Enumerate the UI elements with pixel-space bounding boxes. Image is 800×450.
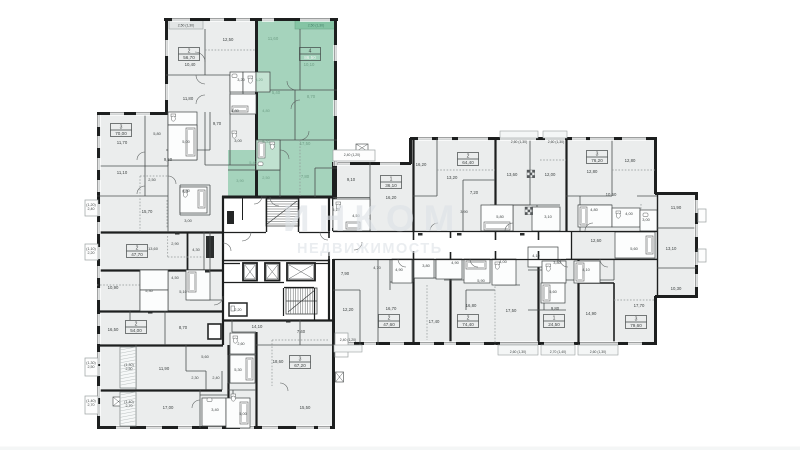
svg-text:17,50: 17,50 <box>506 308 517 313</box>
svg-text:3,00: 3,00 <box>234 138 242 143</box>
svg-text:2,40: 2,40 <box>88 207 95 211</box>
svg-text:54,00: 54,00 <box>130 328 142 333</box>
svg-text:5,40: 5,40 <box>272 90 281 95</box>
svg-text:2,50: 2,50 <box>88 365 95 369</box>
svg-text:2: 2 <box>388 315 391 321</box>
svg-text:12,80: 12,80 <box>587 169 598 174</box>
svg-text:9,10: 9,10 <box>347 177 356 182</box>
svg-text:3: 3 <box>299 356 302 362</box>
svg-text:2,60 (1,30): 2,60 (1,30) <box>510 350 526 354</box>
svg-text:11,10: 11,10 <box>117 170 128 175</box>
svg-text:5,00: 5,00 <box>239 411 247 416</box>
svg-text:3,80: 3,80 <box>553 260 561 265</box>
svg-text:12,20: 12,20 <box>343 307 354 312</box>
svg-text:11,60: 11,60 <box>268 36 279 41</box>
svg-text:2,40 (1,20): 2,40 (1,20) <box>344 153 360 157</box>
svg-text:11,90: 11,90 <box>159 366 170 371</box>
svg-text:10,30: 10,30 <box>671 286 682 291</box>
svg-text:4,30: 4,30 <box>192 247 200 252</box>
svg-text:10,90: 10,90 <box>108 285 119 290</box>
svg-text:17,00: 17,00 <box>163 405 174 410</box>
svg-text:2,40: 2,40 <box>212 376 219 380</box>
svg-text:5,30: 5,30 <box>145 288 153 293</box>
svg-text:36,10: 36,10 <box>385 183 397 188</box>
svg-text:9,80: 9,80 <box>551 306 560 311</box>
svg-text:3,90: 3,90 <box>236 178 244 183</box>
svg-text:70,00: 70,00 <box>115 131 127 136</box>
svg-text:2: 2 <box>188 48 191 54</box>
svg-text:7,20: 7,20 <box>470 190 479 195</box>
svg-text:4,90: 4,90 <box>451 260 459 265</box>
svg-text:4,80: 4,80 <box>590 207 598 212</box>
svg-text:2,60 (1,30): 2,60 (1,30) <box>511 140 527 144</box>
svg-text:17,40: 17,40 <box>429 319 440 324</box>
svg-text:5,10: 5,10 <box>179 289 187 294</box>
svg-text:2,20: 2,20 <box>234 308 241 312</box>
svg-text:12,00: 12,00 <box>545 172 556 177</box>
svg-text:13,60: 13,60 <box>507 172 518 177</box>
svg-text:5,40: 5,40 <box>249 160 257 165</box>
svg-text:5,30: 5,30 <box>234 367 242 372</box>
svg-text:ИНКОМ: ИНКОМ <box>283 198 464 239</box>
svg-text:3,10: 3,10 <box>544 214 552 219</box>
svg-text:2: 2 <box>467 315 470 321</box>
svg-text:15,50: 15,50 <box>300 405 311 410</box>
svg-text:76,20: 76,20 <box>591 158 603 163</box>
svg-text:2,30: 2,30 <box>191 376 198 380</box>
svg-text:4,00: 4,00 <box>499 259 507 264</box>
svg-text:79,60: 79,60 <box>630 323 642 328</box>
svg-text:3,80: 3,80 <box>422 263 430 268</box>
svg-text:10,40: 10,40 <box>185 62 196 67</box>
svg-text:9,60: 9,60 <box>164 157 173 162</box>
svg-text:7,90: 7,90 <box>341 271 350 276</box>
svg-text:13,60: 13,60 <box>148 246 159 251</box>
svg-text:4,90: 4,90 <box>395 267 403 272</box>
svg-text:НЕДВИЖИМОСТЬ: НЕДВИЖИМОСТЬ <box>297 241 443 257</box>
svg-text:2,90: 2,90 <box>171 241 179 246</box>
svg-text:5,00: 5,00 <box>182 139 190 144</box>
svg-text:5,30: 5,30 <box>262 139 270 144</box>
svg-text:2,20: 2,20 <box>88 251 95 255</box>
svg-text:12,60: 12,60 <box>591 238 602 243</box>
svg-text:2,50: 2,50 <box>148 177 156 182</box>
svg-text:13,20: 13,20 <box>447 175 458 180</box>
svg-text:3,20: 3,20 <box>255 77 263 82</box>
svg-text:4,10: 4,10 <box>532 253 540 258</box>
svg-text:5,80: 5,80 <box>496 214 504 219</box>
svg-text:11,70: 11,70 <box>117 140 128 145</box>
svg-text:3,00: 3,00 <box>184 218 192 223</box>
svg-text:5,60: 5,60 <box>201 354 209 359</box>
svg-text:8,70: 8,70 <box>307 94 316 99</box>
svg-text:2: 2 <box>467 153 470 159</box>
svg-text:2,50 (1,30): 2,50 (1,30) <box>308 24 324 28</box>
svg-text:2,60 (1,30): 2,60 (1,30) <box>548 140 564 144</box>
svg-text:11,80: 11,80 <box>183 96 194 101</box>
svg-text:13,10: 13,10 <box>666 246 677 251</box>
svg-text:10,10: 10,10 <box>304 62 315 67</box>
svg-text:64,40: 64,40 <box>462 160 474 165</box>
svg-text:12,80: 12,80 <box>625 158 636 163</box>
svg-text:1: 1 <box>390 176 393 182</box>
svg-text:18,60: 18,60 <box>273 359 284 364</box>
svg-text:2,70: 2,70 <box>126 404 133 408</box>
svg-text:4,50: 4,50 <box>171 275 179 280</box>
svg-text:15,70: 15,70 <box>142 209 153 214</box>
svg-text:4,80: 4,80 <box>231 108 239 113</box>
svg-text:2,40 (1,20): 2,40 (1,20) <box>340 338 356 342</box>
svg-text:14,90: 14,90 <box>586 311 597 316</box>
svg-text:86,50: 86,50 <box>304 55 316 60</box>
svg-text:12,50: 12,50 <box>223 37 234 42</box>
svg-text:16,20: 16,20 <box>416 162 427 167</box>
svg-text:4,70: 4,70 <box>373 265 381 270</box>
svg-text:47,70: 47,70 <box>131 252 143 257</box>
svg-text:2,70: 2,70 <box>88 403 95 407</box>
svg-text:8,70: 8,70 <box>179 325 188 330</box>
svg-text:2: 2 <box>136 245 139 251</box>
svg-text:10,50: 10,50 <box>606 192 617 197</box>
svg-text:4,00: 4,00 <box>625 211 633 216</box>
svg-text:14,10: 14,10 <box>252 324 263 329</box>
svg-text:5,90: 5,90 <box>477 278 485 283</box>
svg-text:74,40: 74,40 <box>462 322 474 327</box>
svg-text:56,70: 56,70 <box>183 55 195 60</box>
svg-text:11,90: 11,90 <box>671 205 682 210</box>
svg-text:5,80: 5,80 <box>153 131 161 136</box>
svg-text:4,40: 4,40 <box>182 188 190 193</box>
svg-text:5,60: 5,60 <box>630 246 638 251</box>
svg-text:3,20: 3,20 <box>237 77 245 82</box>
svg-text:4,80: 4,80 <box>262 108 270 113</box>
svg-text:3,40: 3,40 <box>211 407 219 412</box>
svg-text:3: 3 <box>596 151 599 157</box>
svg-text:2,70 (1,40): 2,70 (1,40) <box>550 350 566 354</box>
svg-text:4: 4 <box>309 48 312 54</box>
svg-text:16,50: 16,50 <box>108 327 119 332</box>
svg-text:1: 1 <box>553 315 556 321</box>
svg-text:9,70: 9,70 <box>213 121 222 126</box>
svg-text:47,60: 47,60 <box>383 322 395 327</box>
svg-text:16,80: 16,80 <box>466 303 477 308</box>
svg-text:17,50: 17,50 <box>300 141 311 146</box>
svg-text:3: 3 <box>120 124 123 130</box>
svg-text:5,60: 5,60 <box>549 289 557 294</box>
svg-text:3,00: 3,00 <box>642 217 650 222</box>
svg-text:17,70: 17,70 <box>634 303 645 308</box>
svg-text:2,50 (1,30): 2,50 (1,30) <box>178 24 194 28</box>
svg-text:2,50: 2,50 <box>262 175 270 180</box>
svg-text:4,10: 4,10 <box>582 267 590 272</box>
svg-text:2: 2 <box>135 321 138 327</box>
svg-text:2,50: 2,50 <box>126 367 133 371</box>
svg-text:7,40: 7,40 <box>297 329 306 334</box>
svg-text:2,60 (1,30): 2,60 (1,30) <box>590 350 606 354</box>
svg-text:67,20: 67,20 <box>294 363 306 368</box>
svg-text:16,70: 16,70 <box>386 306 397 311</box>
svg-text:2,60: 2,60 <box>237 342 244 346</box>
svg-text:7,80: 7,80 <box>301 174 310 179</box>
svg-text:24,50: 24,50 <box>548 322 560 327</box>
svg-text:3: 3 <box>635 316 638 322</box>
